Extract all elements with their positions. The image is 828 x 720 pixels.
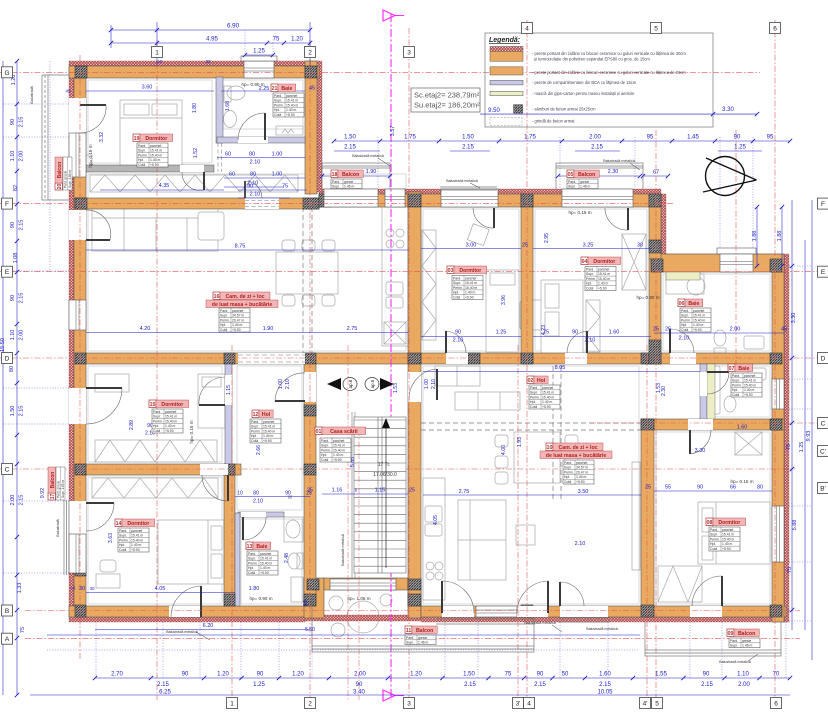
svg-text:15.40 m: 15.40 m xyxy=(263,429,275,433)
svg-text:17 Tr.: 17 Tr. xyxy=(378,462,391,468)
svg-text:Supr.: Supr. xyxy=(119,534,127,538)
svg-text:15.40 m: 15.40 m xyxy=(286,103,298,107)
svg-text:Dormitor: Dormitor xyxy=(145,136,167,142)
svg-text:Balustradă metalică: Balustradă metalică xyxy=(586,627,618,631)
svg-text:90: 90 xyxy=(572,330,578,336)
svg-text:1.15: 1.15 xyxy=(375,488,386,494)
svg-text:14: 14 xyxy=(116,521,122,527)
svg-text:Pard.: Pard. xyxy=(332,180,340,184)
svg-text:3.57: 3.57 xyxy=(390,126,396,137)
svg-text:Cotă: Cotă xyxy=(251,439,258,443)
svg-text:5: 5 xyxy=(654,26,658,33)
svg-text:15.41 m: 15.41 m xyxy=(263,425,275,429)
svg-text:1.40 m: 1.40 m xyxy=(465,291,476,295)
svg-text:75: 75 xyxy=(505,672,512,678)
svg-text:15: 15 xyxy=(158,59,163,64)
svg-text:15.40 m: 15.40 m xyxy=(165,419,177,423)
svg-text:2.00: 2.00 xyxy=(738,682,750,688)
svg-text:Sc.etaj2= 238,79m²: Sc.etaj2= 238,79m² xyxy=(414,91,480,100)
svg-text:gresie: gresie xyxy=(344,180,353,184)
svg-text:Supr.: Supr. xyxy=(321,444,329,448)
svg-text:Legendă:: Legendă: xyxy=(489,37,520,44)
svg-text:1.25: 1.25 xyxy=(253,49,265,55)
svg-text:90: 90 xyxy=(734,135,741,141)
svg-text:1.60: 1.60 xyxy=(599,672,611,678)
svg-text:+5.90: +5.90 xyxy=(576,480,585,484)
svg-text:Cotă: Cotă xyxy=(138,163,145,167)
svg-text:15.40 m: 15.40 m xyxy=(744,383,756,387)
svg-text:4.23: 4.23 xyxy=(541,325,547,335)
svg-text:D: D xyxy=(821,356,826,363)
svg-text:C: C xyxy=(821,421,826,428)
svg-text:- perete portant din zidărie c: - perete portant din zidărie cu blocuri … xyxy=(532,70,686,75)
svg-text:și termoizolație din polistire: și termoizolație din polistiren expandat… xyxy=(534,57,650,62)
svg-text:6: 6 xyxy=(773,26,777,33)
svg-text:Supr.: Supr. xyxy=(332,185,340,189)
svg-text:1.20: 1.20 xyxy=(292,672,304,678)
svg-text:hp= 0.90 m: hp= 0.90 m xyxy=(636,295,659,300)
svg-text:8.05: 8.05 xyxy=(555,365,566,371)
svg-text:Hpl.: Hpl. xyxy=(530,400,536,404)
svg-text:03: 03 xyxy=(448,268,454,274)
svg-text:parchet: parchet xyxy=(333,439,344,443)
svg-text:Perim.: Perim. xyxy=(453,286,463,290)
svg-text:gresie: gresie xyxy=(580,180,589,184)
svg-text:10: 10 xyxy=(546,445,552,451)
svg-text:parchet: parchet xyxy=(722,528,733,532)
svg-text:4': 4' xyxy=(643,701,648,708)
svg-text:25: 25 xyxy=(307,488,313,494)
svg-text:2.15: 2.15 xyxy=(157,682,169,688)
svg-text:Pard.: Pard. xyxy=(732,374,740,378)
svg-text:1.75: 1.75 xyxy=(524,135,536,141)
svg-text:90: 90 xyxy=(703,672,710,678)
svg-text:Cotă: Cotă xyxy=(530,405,537,409)
svg-text:26.47 m: 26.47 m xyxy=(232,318,244,322)
svg-text:Supr.: Supr. xyxy=(586,272,594,276)
svg-text:Cam. de zi + loc: Cam. de zi + loc xyxy=(225,294,264,300)
svg-text:1.40 m: 1.40 m xyxy=(260,566,271,570)
svg-text:1.53: 1.53 xyxy=(656,383,662,393)
svg-text:Pard.: Pard. xyxy=(119,529,127,533)
svg-text:90: 90 xyxy=(182,672,189,678)
svg-text:15.40 m: 15.40 m xyxy=(465,286,477,290)
svg-text:+5.90: +5.90 xyxy=(542,405,551,409)
svg-text:90: 90 xyxy=(697,485,703,491)
svg-text:Balustradă metalică: Balustradă metalică xyxy=(341,534,345,566)
svg-text:21: 21 xyxy=(272,86,278,92)
svg-text:Balustradă: Balustradă xyxy=(30,86,34,103)
svg-text:2.15: 2.15 xyxy=(344,145,356,151)
svg-text:8.75: 8.75 xyxy=(235,244,246,250)
svg-text:3.32: 3.32 xyxy=(99,132,105,142)
svg-text:82: 82 xyxy=(13,185,19,191)
svg-text:Hpl.: Hpl. xyxy=(251,434,257,438)
svg-text:parchet: parchet xyxy=(598,267,609,271)
svg-text:Cotă: Cotă xyxy=(321,458,328,462)
svg-text:80: 80 xyxy=(9,366,15,372)
svg-text:hp= 0.90 m: hp= 0.90 m xyxy=(249,596,272,601)
svg-text:15.40 m: 15.40 m xyxy=(542,395,554,399)
svg-text:Supr.: Supr. xyxy=(406,641,414,645)
svg-text:Hpl.: Hpl. xyxy=(220,323,226,327)
svg-text:1.40 m: 1.40 m xyxy=(542,400,553,404)
svg-text:+5.90: +5.90 xyxy=(744,393,753,397)
svg-text:parchet: parchet xyxy=(150,144,161,148)
svg-text:15.41 m: 15.41 m xyxy=(131,534,143,538)
svg-text:45: 45 xyxy=(65,89,71,94)
svg-text:parchet: parchet xyxy=(465,276,476,280)
svg-text:Pard. gresie: Pard. gresie xyxy=(57,481,61,498)
svg-text:2.15: 2.15 xyxy=(19,406,25,417)
svg-text:1.10: 1.10 xyxy=(10,330,16,341)
svg-text:90: 90 xyxy=(257,672,264,678)
svg-text:B: B xyxy=(5,608,9,615)
svg-text:1.25: 1.25 xyxy=(734,145,746,151)
svg-text:15.41 m: 15.41 m xyxy=(744,379,756,383)
svg-text:2.10: 2.10 xyxy=(250,192,261,198)
svg-text:2.15: 2.15 xyxy=(462,145,474,151)
svg-text:1.00: 1.00 xyxy=(272,172,283,178)
svg-text:55: 55 xyxy=(665,485,671,491)
svg-text:15.41 m: 15.41 m xyxy=(722,533,734,537)
svg-text:15.50: 15.50 xyxy=(0,338,6,352)
svg-text:80: 80 xyxy=(250,172,256,178)
svg-text:Perim.: Perim. xyxy=(251,429,261,433)
svg-text:Balcon: Balcon xyxy=(342,172,359,178)
svg-text:1.50: 1.50 xyxy=(463,672,475,678)
svg-text:2.30: 2.30 xyxy=(608,169,619,175)
svg-text:06: 06 xyxy=(679,301,685,307)
svg-text:2.10: 2.10 xyxy=(679,336,690,342)
svg-text:Balustradă: Balustradă xyxy=(56,519,60,536)
svg-text:3.63: 3.63 xyxy=(108,533,114,543)
svg-text:15: 15 xyxy=(150,402,156,408)
svg-text:Balustradă metalică: Balustradă metalică xyxy=(524,621,556,625)
svg-text:75: 75 xyxy=(20,627,26,633)
svg-text:16: 16 xyxy=(213,294,219,300)
svg-text:1.50: 1.50 xyxy=(10,406,16,417)
svg-text:Balustradă metalică: Balustradă metalică xyxy=(166,630,198,634)
svg-text:6.25: 6.25 xyxy=(159,690,171,696)
svg-text:6.90: 6.90 xyxy=(227,23,240,30)
svg-text:Pard.: Pard. xyxy=(530,386,538,390)
svg-text:2.15: 2.15 xyxy=(591,145,603,151)
svg-text:1.20: 1.20 xyxy=(410,672,422,678)
svg-text:1.15: 1.15 xyxy=(226,385,232,395)
svg-text:2.95: 2.95 xyxy=(544,233,550,243)
svg-text:75: 75 xyxy=(282,184,288,190)
svg-text:1.40 m: 1.40 m xyxy=(150,158,161,162)
svg-text:+5.90: +5.90 xyxy=(722,547,731,551)
svg-text:Balustradă metalică: Balustradă metalică xyxy=(446,179,478,183)
svg-text:15.41 m: 15.41 m xyxy=(286,99,298,103)
svg-text:Hol: Hol xyxy=(537,378,546,384)
svg-text:E: E xyxy=(821,269,826,276)
svg-text:1.20: 1.20 xyxy=(217,672,229,678)
svg-text:gresie: gresie xyxy=(418,636,427,640)
svg-text:15.41 m: 15.41 m xyxy=(693,314,705,318)
svg-text:de luat masa + bucătărie: de luat masa + bucătărie xyxy=(546,453,607,459)
svg-text:60: 60 xyxy=(225,152,231,158)
svg-text:25: 25 xyxy=(522,243,528,249)
svg-text:Supr.: Supr. xyxy=(453,281,461,285)
svg-text:+5.90: +5.90 xyxy=(598,287,607,291)
svg-text:2.00: 2.00 xyxy=(730,327,741,333)
svg-text:9.93: 9.93 xyxy=(806,431,812,442)
svg-text:80: 80 xyxy=(249,152,255,158)
svg-text:9.92: 9.92 xyxy=(40,488,46,498)
svg-text:Supr.: Supr. xyxy=(710,533,718,537)
svg-text:+5.90: +5.90 xyxy=(333,458,342,462)
svg-text:+5.90: +5.90 xyxy=(131,548,140,552)
svg-text:Cotă: Cotă xyxy=(453,296,460,300)
svg-text:Balustradă metalică: Balustradă metalică xyxy=(719,660,751,664)
svg-text:1.40 m: 1.40 m xyxy=(744,388,755,392)
svg-text:6.20: 6.20 xyxy=(203,623,214,629)
svg-text:3: 3 xyxy=(407,50,411,57)
svg-text:Su.etaj2= 186,20m²: Su.etaj2= 186,20m² xyxy=(414,101,480,110)
svg-text:2.10: 2.10 xyxy=(285,379,291,389)
svg-text:2.75: 2.75 xyxy=(459,489,470,495)
svg-text:1.50: 1.50 xyxy=(344,135,356,141)
svg-text:Perim.: Perim. xyxy=(220,318,230,322)
svg-text:+5.90: +5.90 xyxy=(465,296,474,300)
svg-text:15.41 m: 15.41 m xyxy=(165,415,177,419)
svg-text:- perete de compartimentare di: - perete de compartimentare din BCA cu l… xyxy=(532,80,637,85)
svg-text:05: 05 xyxy=(568,172,574,178)
svg-text:- mască din gips-carton pentru: - mască din gips-carton pentru traseu in… xyxy=(532,91,635,96)
svg-text:F: F xyxy=(821,201,825,208)
svg-text:1.50: 1.50 xyxy=(462,135,474,141)
svg-text:1.40 m: 1.40 m xyxy=(598,282,609,286)
svg-text:2.15: 2.15 xyxy=(701,682,713,688)
svg-text:ap.6: ap.6 xyxy=(348,379,353,388)
svg-text:Cotă: Cotă xyxy=(732,393,739,397)
svg-text:75: 75 xyxy=(787,567,793,573)
svg-text:Perim.: Perim. xyxy=(732,383,742,387)
svg-text:Supr.: Supr. xyxy=(251,425,259,429)
svg-text:1.46 m: 1.46 m xyxy=(580,185,591,189)
svg-text:Dormitor: Dormitor xyxy=(718,520,740,526)
svg-text:50: 50 xyxy=(562,672,569,678)
svg-text:1.46 m: 1.46 m xyxy=(742,644,753,648)
svg-text:A: A xyxy=(5,636,10,643)
svg-text:Hpl.: Hpl. xyxy=(681,323,687,327)
svg-text:de luat masa + bucătărie: de luat masa + bucătărie xyxy=(212,302,273,308)
svg-text:3.40: 3.40 xyxy=(353,690,365,696)
svg-text:12: 12 xyxy=(253,412,259,418)
svg-text:Dormitor: Dormitor xyxy=(459,268,481,274)
svg-text:15.41 m: 15.41 m xyxy=(542,391,554,395)
svg-text:Cotă: Cotă xyxy=(586,287,593,291)
svg-text:1.00: 1.00 xyxy=(272,152,283,158)
svg-text:Supr.: Supr. xyxy=(138,149,146,153)
svg-text:+5.90: +5.90 xyxy=(286,113,295,117)
svg-text:2.48: 2.48 xyxy=(284,553,290,563)
svg-text:F: F xyxy=(5,201,9,208)
svg-text:18: 18 xyxy=(332,172,338,178)
svg-text:26.47 m: 26.47 m xyxy=(576,470,588,474)
svg-text:1.40 m: 1.40 m xyxy=(165,424,176,428)
svg-text:75: 75 xyxy=(273,37,280,43)
svg-text:Supr. 4.89 m: Supr. 4.89 m xyxy=(68,170,72,188)
svg-text:90: 90 xyxy=(455,330,461,336)
svg-text:Pard.: Pard. xyxy=(568,180,576,184)
svg-text:1.40 m: 1.40 m xyxy=(286,108,297,112)
svg-text:70: 70 xyxy=(773,672,780,678)
svg-text:Perim.: Perim. xyxy=(274,103,284,107)
svg-text:Perim.: Perim. xyxy=(138,153,148,157)
svg-text:Pard.: Pard. xyxy=(564,461,572,465)
svg-text:Baie: Baie xyxy=(688,301,699,307)
svg-text:1.25: 1.25 xyxy=(496,330,507,336)
svg-text:hp= 0.15 m: hp= 0.15 m xyxy=(189,420,194,443)
svg-text:1.46 m: 1.46 m xyxy=(418,641,429,645)
svg-text:1.25: 1.25 xyxy=(799,442,805,453)
svg-text:66: 66 xyxy=(730,485,736,491)
svg-text:Cotă: Cotă xyxy=(220,328,227,332)
svg-text:1.40 m: 1.40 m xyxy=(232,323,243,327)
svg-text:1.53: 1.53 xyxy=(393,383,399,393)
svg-text:2.66: 2.66 xyxy=(256,445,262,455)
svg-text:4: 4 xyxy=(527,701,531,708)
svg-text:hp= 0.15 m: hp= 0.15 m xyxy=(568,210,591,215)
svg-text:Supr.: Supr. xyxy=(681,314,689,318)
svg-text:1.45: 1.45 xyxy=(687,135,699,141)
svg-text:Perim.: Perim. xyxy=(530,395,540,399)
svg-text:3.30: 3.30 xyxy=(695,448,706,454)
svg-text:1.25: 1.25 xyxy=(253,682,265,688)
svg-text:1.80: 1.80 xyxy=(249,586,260,592)
svg-text:1.75: 1.75 xyxy=(404,135,416,141)
svg-text:Pard.: Pard. xyxy=(251,420,259,424)
svg-text:B': B' xyxy=(820,486,826,493)
svg-text:04: 04 xyxy=(582,259,588,265)
svg-text:Hpl.: Hpl. xyxy=(248,566,254,570)
svg-text:Balcon: Balcon xyxy=(578,172,595,178)
svg-text:1.10: 1.10 xyxy=(737,672,749,678)
svg-text:5.88: 5.88 xyxy=(792,520,798,531)
svg-text:1.16: 1.16 xyxy=(332,488,343,494)
svg-text:3': 3' xyxy=(516,701,521,708)
svg-text:3.96: 3.96 xyxy=(501,295,507,305)
svg-text:Hpl.: Hpl. xyxy=(274,108,280,112)
svg-text:Hpl.: Hpl. xyxy=(138,158,144,162)
svg-text:Baie: Baie xyxy=(738,366,749,372)
svg-text:2.15: 2.15 xyxy=(464,682,476,688)
svg-text:Baie: Baie xyxy=(281,86,292,92)
svg-text:1.40 m: 1.40 m xyxy=(693,323,704,327)
svg-text:4.35: 4.35 xyxy=(159,183,170,189)
svg-text:Balcon: Balcon xyxy=(50,472,56,489)
svg-text:Baie: Baie xyxy=(256,544,267,550)
svg-text:Perim.: Perim. xyxy=(321,448,331,452)
svg-text:2.00: 2.00 xyxy=(589,135,601,141)
svg-text:Pard.: Pard. xyxy=(220,309,228,313)
svg-text:Balcon: Balcon xyxy=(416,628,433,634)
svg-text:Supr.: Supr. xyxy=(568,185,576,189)
svg-text:45: 45 xyxy=(781,327,787,333)
svg-text:95: 95 xyxy=(647,135,654,141)
svg-text:D: D xyxy=(5,356,10,363)
svg-text:09: 09 xyxy=(728,631,734,637)
svg-text:Perim.: Perim. xyxy=(710,537,720,541)
svg-text:2.00: 2.00 xyxy=(354,672,366,678)
svg-text:90: 90 xyxy=(10,222,16,228)
svg-text:4.05: 4.05 xyxy=(433,515,439,525)
svg-text:Pard.: Pard. xyxy=(406,636,414,640)
svg-text:15.41 m: 15.41 m xyxy=(150,149,162,153)
svg-text:15.40 m: 15.40 m xyxy=(693,318,705,322)
svg-text:Hpl.: Hpl. xyxy=(732,388,738,392)
svg-text:parchet: parchet xyxy=(131,529,142,533)
svg-text:Balcon: Balcon xyxy=(738,631,755,637)
svg-text:3.50: 3.50 xyxy=(578,489,589,495)
svg-text:Supr.: Supr. xyxy=(153,415,161,419)
svg-text:Pard. gresie: Pard. gresie xyxy=(64,171,68,188)
svg-text:1.68: 1.68 xyxy=(225,101,231,111)
svg-text:1.33: 1.33 xyxy=(17,583,23,594)
svg-text:Pard.: Pard. xyxy=(710,528,718,532)
svg-text:Hpl.: Hpl. xyxy=(564,475,570,479)
svg-text:1.10: 1.10 xyxy=(10,151,16,162)
svg-text:Supr.: Supr. xyxy=(274,99,282,103)
svg-text:01: 01 xyxy=(316,429,322,435)
svg-text:1.40 m: 1.40 m xyxy=(722,542,733,546)
svg-text:Hpl.: Hpl. xyxy=(321,453,327,457)
svg-text:02: 02 xyxy=(528,378,534,384)
svg-text:Perim.: Perim. xyxy=(681,318,691,322)
svg-text:1.00: 1.00 xyxy=(424,379,430,389)
svg-text:25: 25 xyxy=(665,327,671,333)
svg-text:Supr.: Supr. xyxy=(732,379,740,383)
svg-text:5: 5 xyxy=(355,488,358,493)
svg-text:15.41 m: 15.41 m xyxy=(260,557,272,561)
svg-text:1.88: 1.88 xyxy=(777,231,783,242)
svg-text:Balcon: Balcon xyxy=(57,162,63,179)
svg-text:10: 10 xyxy=(237,491,243,497)
svg-text:15.40 m: 15.40 m xyxy=(333,448,345,452)
svg-text:Perim.: Perim. xyxy=(119,538,129,542)
svg-text:25: 25 xyxy=(645,485,651,491)
svg-text:Cam. de zi + loc: Cam. de zi + loc xyxy=(558,445,597,451)
svg-text:15.41 m: 15.41 m xyxy=(333,444,345,448)
svg-text:+5.90: +5.90 xyxy=(165,429,174,433)
svg-text:Hpl.: Hpl. xyxy=(453,291,459,295)
svg-text:4.20: 4.20 xyxy=(140,326,151,332)
svg-text:1: 1 xyxy=(155,50,159,57)
svg-text:3.30: 3.30 xyxy=(722,107,734,113)
svg-text:3.00: 3.00 xyxy=(466,243,477,249)
svg-text:1.08: 1.08 xyxy=(13,253,19,264)
svg-text:Cotă: Cotă xyxy=(564,480,571,484)
svg-text:90: 90 xyxy=(10,295,16,301)
svg-text:1.40 m: 1.40 m xyxy=(263,434,274,438)
svg-text:Hpl.: Hpl. xyxy=(586,282,592,286)
svg-text:30: 30 xyxy=(89,586,95,591)
svg-text:parchet: parchet xyxy=(693,309,704,313)
svg-text:2.10: 2.10 xyxy=(250,160,261,166)
svg-text:1.52: 1.52 xyxy=(193,148,199,158)
svg-text:2.10: 2.10 xyxy=(575,541,586,547)
svg-text:2.15: 2.15 xyxy=(19,293,25,304)
svg-text:Supr. 1.65 m: Supr. 1.65 m xyxy=(61,480,65,498)
svg-text:30: 30 xyxy=(637,243,643,249)
svg-text:2.75: 2.75 xyxy=(347,326,358,332)
svg-text:2.10: 2.10 xyxy=(431,379,437,389)
svg-text:+5.90: +5.90 xyxy=(693,328,702,332)
